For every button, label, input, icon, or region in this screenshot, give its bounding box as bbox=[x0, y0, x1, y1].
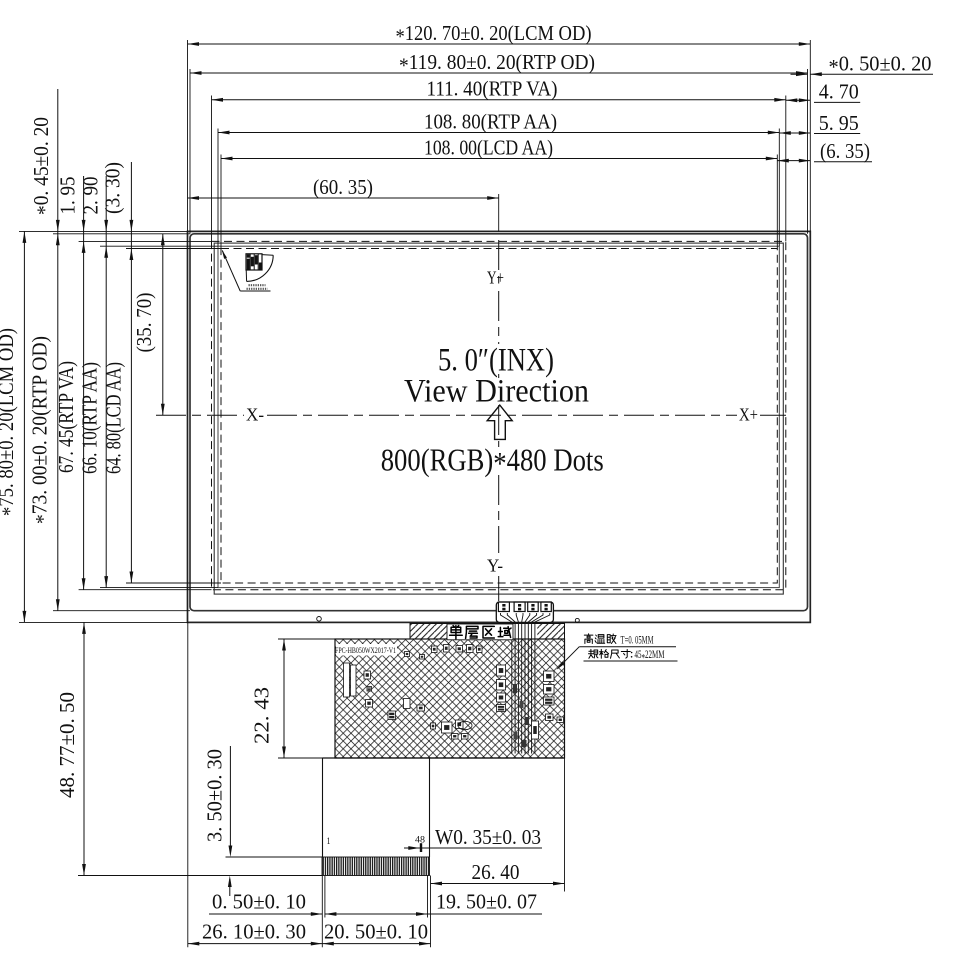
svg-text:(3. 30): (3. 30) bbox=[101, 162, 125, 214]
svg-text:48. 77±0. 50: 48. 77±0. 50 bbox=[55, 692, 79, 798]
svg-text:4. 70: 4. 70 bbox=[819, 80, 859, 104]
svg-text:108. 00(LCD AA): 108. 00(LCD AA) bbox=[424, 136, 553, 160]
svg-text:(60. 35): (60. 35) bbox=[313, 175, 373, 199]
svg-text:22. 43: 22. 43 bbox=[250, 687, 274, 744]
svg-text:2. 90: 2. 90 bbox=[79, 177, 103, 215]
svg-text:(35. 70): (35. 70) bbox=[132, 293, 156, 353]
svg-text:FPC-HB050WX2017-V1: FPC-HB050WX2017-V1 bbox=[335, 646, 396, 655]
svg-text:0. 50±0. 10: 0. 50±0. 10 bbox=[212, 890, 306, 914]
svg-text:*​0. 50±0. 20: *​0. 50±0. 20 bbox=[829, 52, 932, 80]
svg-text:*​73. 00±0. 20(RTP OD): *​73. 00±0. 20(RTP OD) bbox=[28, 336, 56, 524]
svg-text:*​119. 80±0. 20(RTP OD): *​119. 80±0. 20(RTP OD) bbox=[399, 50, 595, 78]
svg-text:1: 1 bbox=[327, 836, 331, 846]
svg-text:800(RGB)*​480 Dots: 800(RGB)*​480 Dots bbox=[381, 442, 604, 482]
svg-text:108. 80(RTP AA): 108. 80(RTP AA) bbox=[424, 110, 557, 134]
svg-text:W0. 35±0. 03: W0. 35±0. 03 bbox=[435, 825, 541, 849]
svg-text:67. 45(RTP VA): 67. 45(RTP VA) bbox=[54, 361, 78, 473]
svg-text:19. 50±0. 07: 19. 50±0. 07 bbox=[436, 890, 537, 914]
svg-text:X+: X+ bbox=[739, 405, 758, 425]
svg-text:64. 80(LCD AA): 64. 80(LCD AA) bbox=[102, 362, 126, 474]
svg-text:(6. 35): (6. 35) bbox=[820, 139, 870, 163]
svg-text:X-: X- bbox=[246, 405, 264, 425]
svg-text:Y-: Y- bbox=[487, 556, 503, 576]
svg-text:*​0. 45±0. 20: *​0. 45±0. 20 bbox=[29, 117, 57, 215]
svg-text:Y+: Y+ bbox=[487, 268, 504, 288]
svg-text:3. 50±0. 30: 3. 50±0. 30 bbox=[203, 749, 227, 842]
svg-text:View Direction: View Direction bbox=[404, 374, 589, 410]
svg-text:5. 95: 5. 95 bbox=[819, 111, 859, 135]
svg-text:20. 50±0. 10: 20. 50±0. 10 bbox=[324, 920, 428, 944]
svg-text:*​120. 70±0. 20(LCM OD): *​120. 70±0. 20(LCM OD) bbox=[396, 21, 592, 49]
svg-text:26. 10±0. 30: 26. 10±0. 30 bbox=[202, 920, 306, 944]
svg-text:48: 48 bbox=[415, 835, 426, 845]
svg-text:1. 95: 1. 95 bbox=[56, 177, 80, 215]
svg-text:T=0. 05MM: T=0. 05MM bbox=[621, 633, 654, 647]
svg-text:111. 40(RTP VA): 111. 40(RTP VA) bbox=[427, 77, 558, 101]
svg-text:66. 10(RTP AA): 66. 10(RTP AA) bbox=[78, 362, 102, 474]
svg-text:26. 40: 26. 40 bbox=[472, 860, 520, 884]
